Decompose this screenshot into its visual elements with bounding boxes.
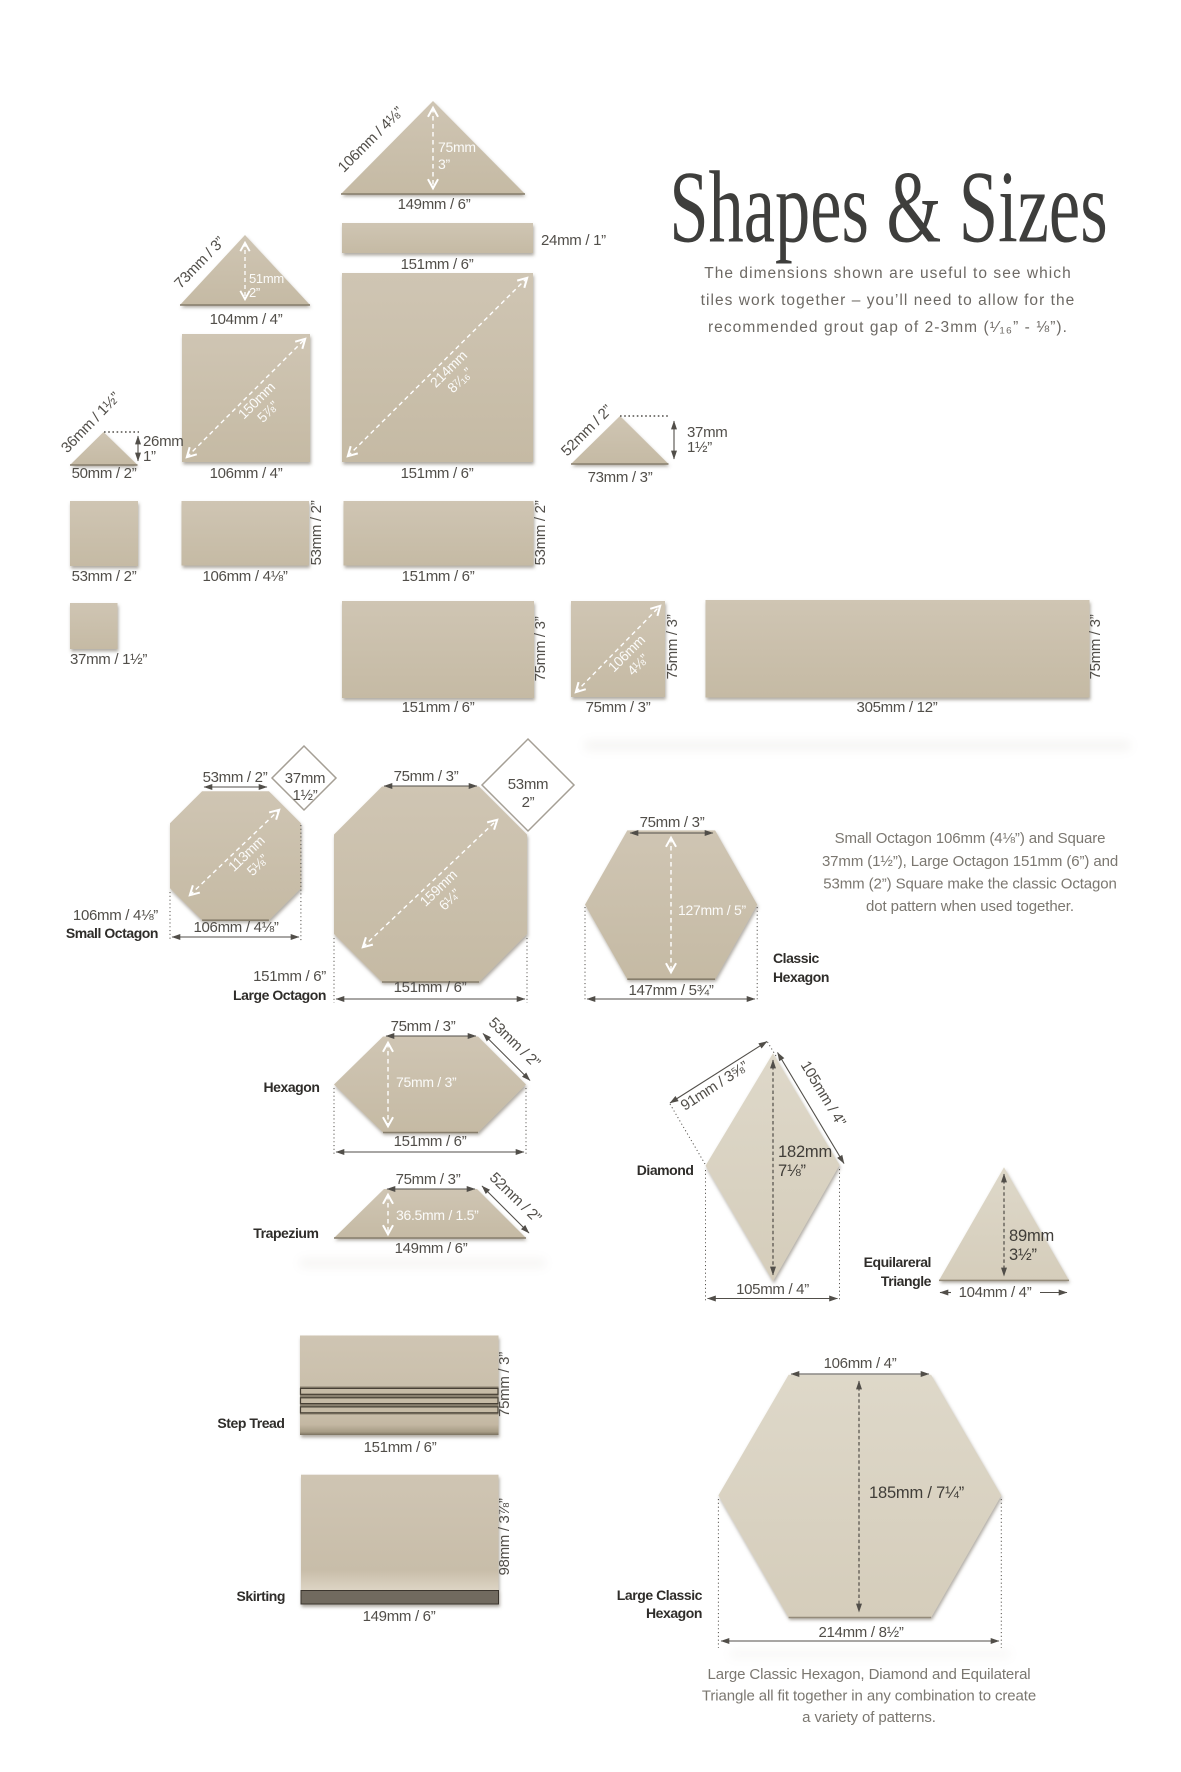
svg-text:Large Octagon: Large Octagon <box>233 987 326 1003</box>
svg-text:a variety of patterns.: a variety of patterns. <box>802 1709 936 1726</box>
svg-text:recommended grout gap of 2-3mm: recommended grout gap of 2-3mm (¹⁄₁₆” - … <box>708 319 1068 336</box>
svg-text:106mm / 4⅛”: 106mm / 4⅛” <box>193 919 278 936</box>
svg-text:53mm / 2”: 53mm / 2” <box>203 769 268 786</box>
svg-text:73mm / 3”: 73mm / 3” <box>588 469 653 486</box>
svg-text:151mm / 6”: 151mm / 6” <box>253 968 326 985</box>
svg-text:tiles work together – you’ll n: tiles work together – you’ll need to all… <box>701 292 1076 309</box>
svg-text:53mm / 2”: 53mm / 2” <box>308 500 325 565</box>
svg-text:36.5mm / 1.5”: 36.5mm / 1.5” <box>396 1207 479 1223</box>
svg-text:104mm / 4”: 104mm / 4” <box>959 1284 1032 1301</box>
svg-text:53mm / 2”: 53mm / 2” <box>72 568 137 585</box>
svg-text:75mm / 3”: 75mm / 3” <box>640 814 705 831</box>
svg-text:98mm / 3⅞”: 98mm / 3⅞” <box>496 1498 513 1575</box>
svg-text:7⅛”: 7⅛” <box>778 1162 806 1180</box>
svg-text:Classic: Classic <box>773 950 820 966</box>
svg-text:75mm / 3”: 75mm / 3” <box>532 616 549 681</box>
svg-text:75mm / 3”: 75mm / 3” <box>1087 614 1104 679</box>
svg-text:3”: 3” <box>438 156 450 172</box>
svg-text:105mm / 4”: 105mm / 4” <box>736 1281 809 1298</box>
svg-text:151mm / 6”: 151mm / 6” <box>394 979 467 996</box>
svg-text:50mm / 2”: 50mm / 2” <box>72 465 137 482</box>
svg-text:2”: 2” <box>249 285 260 300</box>
svg-text:75mm / 3”: 75mm / 3” <box>396 1074 457 1090</box>
svg-text:127mm / 5”: 127mm / 5” <box>678 902 746 918</box>
svg-text:305mm / 12”: 305mm / 12” <box>857 699 938 716</box>
svg-text:Triangle all fit together in a: Triangle all fit together in any combina… <box>702 1688 1036 1705</box>
svg-text:75mm / 3”: 75mm / 3” <box>396 1171 461 1188</box>
svg-text:3½”: 3½” <box>1009 1246 1037 1264</box>
svg-text:Triangle: Triangle <box>881 1273 932 1289</box>
svg-text:Equilareral: Equilareral <box>864 1254 931 1270</box>
svg-text:75mm / 3”: 75mm / 3” <box>394 768 459 785</box>
svg-text:24mm / 1”: 24mm / 1” <box>541 232 606 249</box>
svg-text:89mm: 89mm <box>1009 1227 1054 1245</box>
svg-text:53mm / 2”: 53mm / 2” <box>532 500 549 565</box>
svg-text:Diamond: Diamond <box>637 1162 694 1178</box>
svg-text:Hexagon: Hexagon <box>646 1605 702 1621</box>
svg-text:1½”: 1½” <box>293 787 318 804</box>
svg-text:The dimensions shown are usefu: The dimensions shown are useful to see w… <box>704 265 1072 282</box>
svg-text:37mm / 1½”: 37mm / 1½” <box>70 651 147 668</box>
svg-text:37mm: 37mm <box>285 770 325 787</box>
svg-text:151mm / 6”: 151mm / 6” <box>401 465 474 482</box>
svg-text:149mm / 6”: 149mm / 6” <box>398 196 471 213</box>
svg-text:75mm / 3”: 75mm / 3” <box>664 614 681 679</box>
svg-text:106mm / 4⅛”: 106mm / 4⅛” <box>73 907 158 924</box>
svg-text:Small Octagon: Small Octagon <box>66 925 158 941</box>
svg-text:Step Tread: Step Tread <box>217 1415 284 1431</box>
svg-text:151mm / 6”: 151mm / 6” <box>402 699 475 716</box>
svg-text:106mm / 4”: 106mm / 4” <box>210 465 283 482</box>
svg-text:151mm / 6”: 151mm / 6” <box>394 1133 467 1150</box>
svg-text:Small Octagon 106mm (4⅛”) and: Small Octagon 106mm (4⅛”) and Square <box>835 830 1106 847</box>
svg-text:51mm: 51mm <box>249 271 284 286</box>
svg-text:37mm (1½”), Large Octagon 151m: 37mm (1½”), Large Octagon 151mm (6”) and <box>822 853 1118 870</box>
svg-text:149mm / 6”: 149mm / 6” <box>363 1608 436 1625</box>
svg-text:106mm / 4⅛”: 106mm / 4⅛” <box>202 568 287 585</box>
svg-text:2”: 2” <box>522 794 535 811</box>
svg-text:75mm / 3”: 75mm / 3” <box>391 1018 456 1035</box>
svg-text:Hexagon: Hexagon <box>773 969 829 985</box>
svg-text:1”: 1” <box>143 448 156 465</box>
svg-text:75mm: 75mm <box>438 139 476 155</box>
svg-text:104mm / 4”: 104mm / 4” <box>210 311 283 328</box>
svg-text:1½”: 1½” <box>687 439 712 456</box>
svg-text:151mm / 6”: 151mm / 6” <box>364 1439 437 1456</box>
svg-text:106mm / 4”: 106mm / 4” <box>824 1355 897 1372</box>
svg-text:151mm / 6”: 151mm / 6” <box>402 568 475 585</box>
svg-text:Trapezium: Trapezium <box>253 1225 318 1241</box>
svg-text:53mm (2”) Square make the clas: 53mm (2”) Square make the classic Octago… <box>823 876 1117 893</box>
svg-text:147mm / 5¾”: 147mm / 5¾” <box>628 982 713 999</box>
svg-text:53mm: 53mm <box>508 776 548 793</box>
svg-text:Hexagon: Hexagon <box>264 1079 320 1095</box>
svg-text:182mm: 182mm <box>778 1143 832 1161</box>
svg-text:Large Classic: Large Classic <box>617 1587 703 1603</box>
svg-text:75mm / 3”: 75mm / 3” <box>496 1352 513 1417</box>
svg-text:dot pattern when used together: dot pattern when used together. <box>866 898 1074 915</box>
svg-text:75mm / 3”: 75mm / 3” <box>586 699 651 716</box>
svg-text:151mm / 6”: 151mm / 6” <box>401 256 474 273</box>
svg-text:185mm / 7¼”: 185mm / 7¼” <box>869 1484 964 1502</box>
svg-text:Shapes & Sizes: Shapes & Sizes <box>669 150 1107 264</box>
svg-text:214mm / 8½”: 214mm / 8½” <box>818 1624 903 1641</box>
svg-text:149mm / 6”: 149mm / 6” <box>395 1240 468 1257</box>
svg-text:Skirting: Skirting <box>236 1588 285 1604</box>
svg-text:Large Classic Hexagon, Diamond: Large Classic Hexagon, Diamond and Equil… <box>707 1666 1030 1683</box>
